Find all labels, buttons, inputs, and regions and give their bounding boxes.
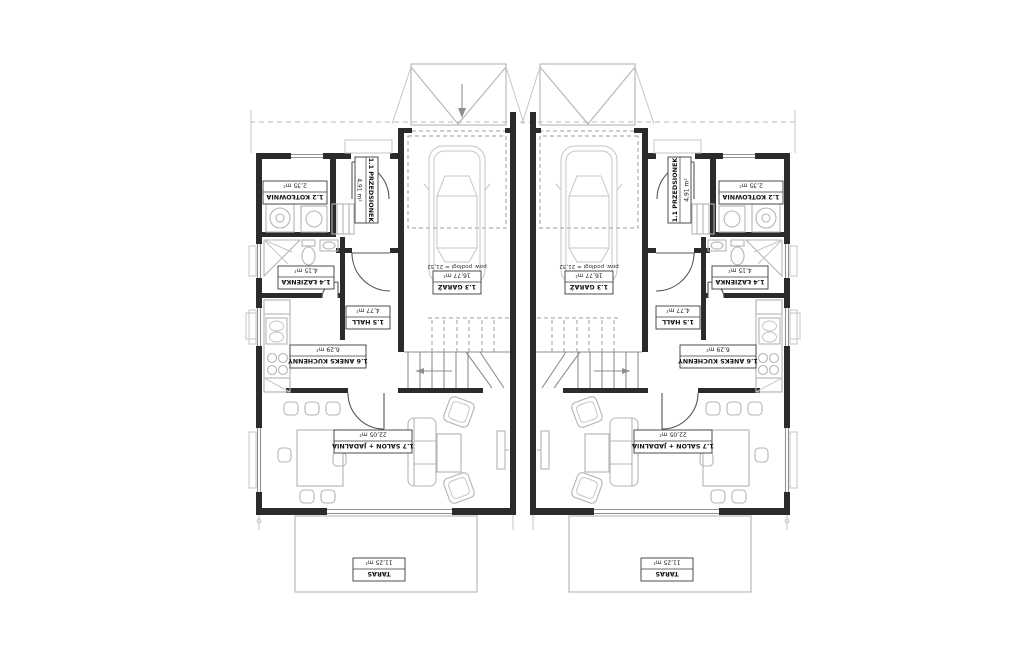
room-label-lazienka: 1.4 ŁAZIENKA 4,15 m² <box>712 266 768 289</box>
svg-text:pow. podłogi = 21,32: pow. podłogi = 21,32 <box>427 263 487 269</box>
svg-text:1.3 GARAŻ: 1.3 GARAŻ <box>438 283 477 292</box>
room-label-salon: 1.7 SALON + JADALNIA 22,05 m² <box>632 430 714 453</box>
floor-plan: 1.2 KOTŁOWNIA 2,35 m² 1.4 ŁAZIENKA 4,15 … <box>0 0 1020 656</box>
room-label-garaz: 1.3 GARAŻ 16,77 m² <box>433 271 481 294</box>
garage-note: pow. podłogi = 21,32 <box>427 263 487 269</box>
terrace-label: TARAS 11,25 m² <box>641 558 693 581</box>
svg-text:1.5 HALL: 1.5 HALL <box>352 318 384 326</box>
svg-text:1.2 KOTŁOWNIA: 1.2 KOTŁOWNIA <box>722 193 779 201</box>
floor-plan-canvas: 1.2 KOTŁOWNIA 2,35 m² 1.4 ŁAZIENKA 4,15 … <box>0 0 1020 656</box>
room-label-kotlownia: 1.2 KOTŁOWNIA 2,35 m² <box>263 181 327 204</box>
svg-text:22,05 m²: 22,05 m² <box>359 431 387 438</box>
svg-text:1.1 PRZEDSIONEK: 1.1 PRZEDSIONEK <box>367 158 375 224</box>
svg-text:1.4 ŁAZIENKA: 1.4 ŁAZIENKA <box>281 278 330 286</box>
room-label-aneks-kuchenny: 1.6 ANEKS KUCHENNY 6,29 m² <box>288 345 368 368</box>
svg-text:TARAS: TARAS <box>367 570 391 578</box>
svg-text:11,25 m²: 11,25 m² <box>653 559 681 566</box>
svg-text:1.6 ANEKS KUCHENNY: 1.6 ANEKS KUCHENNY <box>288 357 368 365</box>
svg-text:4,91 m²: 4,91 m² <box>356 178 363 202</box>
room-label-salon: 1.7 SALON + JADALNIA 22,05 m² <box>332 430 414 453</box>
svg-text:1.7 SALON + JADALNIA: 1.7 SALON + JADALNIA <box>632 442 714 450</box>
room-label-kotlownia: 1.2 KOTŁOWNIA 2,35 m² <box>719 181 783 204</box>
svg-text:1.7 SALON + JADALNIA: 1.7 SALON + JADALNIA <box>332 442 414 450</box>
room-label-przedsionek: 1.1 PRZEDSIONEK 4,91 m² <box>668 157 691 223</box>
svg-text:4,91 m²: 4,91 m² <box>684 178 691 202</box>
svg-text:1.2 KOTŁOWNIA: 1.2 KOTŁOWNIA <box>266 193 323 201</box>
svg-text:16,77 m²: 16,77 m² <box>443 272 471 279</box>
svg-text:4,15 m²: 4,15 m² <box>728 267 752 274</box>
room-label-aneks-kuchenny: 1.6 ANEKS KUCHENNY 6,29 m² <box>678 345 758 368</box>
svg-text:pow. podłogi = 21,32: pow. podłogi = 21,32 <box>559 263 619 269</box>
svg-text:1.4 ŁAZIENKA: 1.4 ŁAZIENKA <box>715 278 764 286</box>
svg-text:2,35 m²: 2,35 m² <box>283 182 307 189</box>
svg-text:1.6 ANEKS KUCHENNY: 1.6 ANEKS KUCHENNY <box>678 357 758 365</box>
svg-text:16,77 m²: 16,77 m² <box>575 272 603 279</box>
svg-text:TARAS: TARAS <box>655 570 679 578</box>
terrace-label: TARAS 11,25 m² <box>353 558 405 581</box>
svg-text:2,35 m²: 2,35 m² <box>739 182 763 189</box>
svg-text:4,77 m²: 4,77 m² <box>356 307 380 314</box>
svg-text:6,29 m²: 6,29 m² <box>316 346 340 353</box>
svg-text:11,25 m²: 11,25 m² <box>365 559 393 566</box>
svg-text:1.3 GARAŻ: 1.3 GARAŻ <box>570 283 609 292</box>
room-label-przedsionek: 1.1 PRZEDSIONEK 4,91 m² <box>355 157 378 223</box>
direction-arrow-icon <box>458 84 466 118</box>
svg-text:4,15 m²: 4,15 m² <box>294 267 318 274</box>
svg-text:22,05 m²: 22,05 m² <box>659 431 687 438</box>
svg-text:1.1 PRZEDSIONEK: 1.1 PRZEDSIONEK <box>671 157 679 223</box>
svg-text:4,77 m²: 4,77 m² <box>666 307 690 314</box>
room-label-hall: 1.5 HALL 4,77 m² <box>346 306 390 329</box>
room-label-hall: 1.5 HALL 4,77 m² <box>656 306 700 329</box>
svg-text:1.5 HALL: 1.5 HALL <box>662 318 694 326</box>
room-label-garaz: 1.3 GARAŻ 16,77 m² <box>565 271 613 294</box>
svg-text:6,29 m²: 6,29 m² <box>706 346 730 353</box>
garage-note: pow. podłogi = 21,32 <box>559 263 619 269</box>
room-label-lazienka: 1.4 ŁAZIENKA 4,15 m² <box>278 266 334 289</box>
